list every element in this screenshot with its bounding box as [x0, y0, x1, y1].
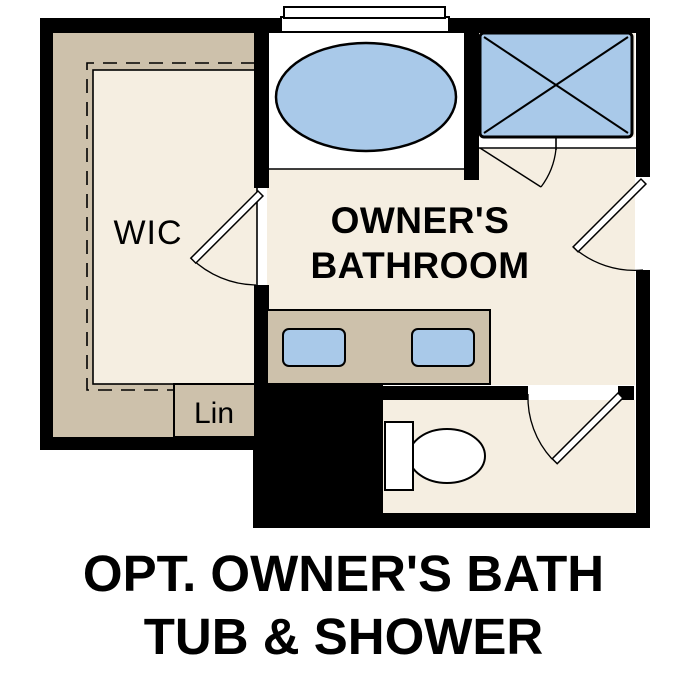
floor-plan-drawing: WIC Lin OWNER'S BATHROOM [0, 0, 687, 540]
toilet-tank-icon [385, 422, 413, 490]
bathroom-label-line1: OWNER'S [331, 200, 510, 241]
sink-right-icon [412, 329, 474, 366]
wall-bottom [253, 513, 650, 528]
wall-wic-bottom [40, 437, 256, 450]
bathroom-label-line2: BATHROOM [310, 245, 529, 286]
window-icon [281, 17, 449, 32]
plan-title: OPT. OWNER'S BATH TUB & SHOWER [0, 542, 687, 668]
wall-right-lower [636, 270, 650, 528]
wall-wic-bath-upper [254, 18, 269, 188]
linen-label: Lin [194, 397, 234, 430]
window-sill [284, 7, 445, 18]
wall-tub-shower [464, 18, 479, 180]
wall-wc-top [383, 386, 528, 400]
toilet-bowl-icon [409, 429, 485, 483]
wic-label: WIC [113, 214, 182, 252]
wall-right-upper [636, 18, 650, 177]
plan-title-line1: OPT. OWNER'S BATH [0, 542, 687, 605]
sink-left-icon [283, 329, 345, 366]
bathtub-icon [276, 43, 456, 151]
wall-left [40, 18, 53, 450]
floor-plan-screenshot: WIC Lin OWNER'S BATHROOM OPT. OWNER'S BA… [0, 0, 687, 687]
wall-block-center [253, 383, 383, 528]
plan-title-line2: TUB & SHOWER [0, 605, 687, 668]
